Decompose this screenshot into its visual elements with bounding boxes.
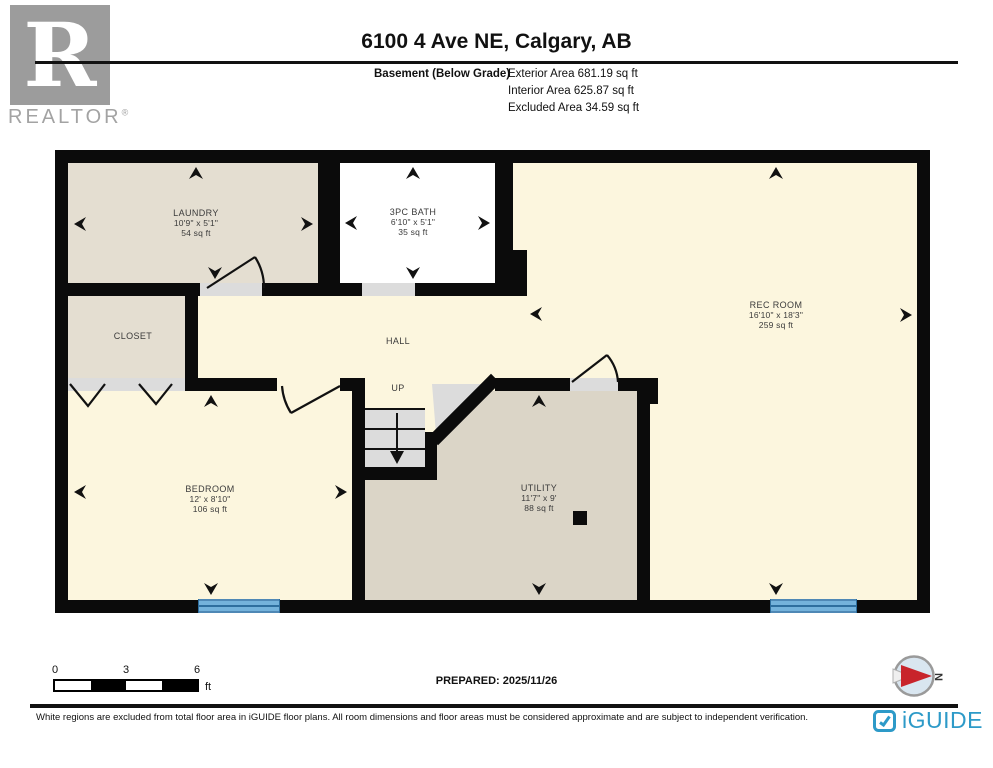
room-name: LAUNDRY [173, 208, 219, 218]
wall-segment [185, 378, 277, 391]
room-area: 106 sq ft [185, 504, 234, 514]
scale-bar: 0 3 6 ft [55, 664, 225, 696]
realtor-wordmark: REALTOR® [8, 106, 128, 129]
wall-segment [917, 163, 930, 613]
scale-cell [91, 681, 127, 690]
exterior-area-text: Exterior Area 681.19 sq ft [508, 68, 638, 80]
page-title: 6100 4 Ave NE, Calgary, AB [0, 30, 993, 54]
wall-segment [262, 283, 340, 296]
wall-segment [55, 283, 200, 296]
room-dims: 10'9" x 5'1" [173, 218, 219, 228]
header-divider [35, 61, 958, 64]
room-dims: 16'10" x 18'3" [749, 310, 803, 320]
room-dims: 11'7" x 9' [521, 493, 557, 503]
room-name: 3PC BATH [390, 207, 437, 217]
room-name: HALL [386, 336, 410, 346]
window-recroom [770, 599, 857, 613]
stair-treads [365, 408, 425, 467]
scale-bar-strip [53, 679, 199, 692]
room-name: REC ROOM [749, 300, 803, 310]
scale-cell [162, 681, 198, 690]
compass-north-label: N [932, 673, 944, 681]
wall-segment [340, 283, 362, 296]
wall-segment [637, 378, 650, 613]
floor-utility-understairs [365, 480, 437, 600]
iguide-icon [872, 708, 898, 734]
room-name: UTILITY [521, 483, 557, 493]
room-label-hall: HALL [386, 336, 410, 346]
scale-cell [55, 681, 91, 690]
realtor-brand-text: REALTOR [8, 106, 122, 128]
room-area: 88 sq ft [521, 503, 557, 513]
registered-mark: ® [122, 107, 129, 117]
scale-unit: ft [205, 681, 211, 693]
wall-segment [495, 378, 570, 391]
footer-divider [30, 704, 958, 708]
floor-label: Basement (Below Grade) [374, 68, 510, 80]
room-area: 259 sq ft [749, 320, 803, 330]
wall-segment [55, 163, 68, 613]
room-name: BEDROOM [185, 484, 234, 494]
closet-door-threshold [68, 378, 185, 391]
interior-area-text: Interior Area 625.87 sq ft [508, 85, 634, 97]
laundry-door-threshold [200, 283, 262, 296]
wall-segment [415, 283, 495, 296]
iguide-logo: iGUIDE [872, 707, 983, 734]
wall-segment [352, 378, 365, 613]
bath-door-threshold [362, 283, 415, 296]
scale-cell [126, 681, 162, 690]
scale-tick: 6 [194, 664, 200, 676]
scale-tick: 3 [123, 664, 129, 676]
wall-segment [318, 163, 340, 291]
room-label-utility: UTILITY 11'7" x 9' 88 sq ft [521, 483, 557, 513]
room-name: CLOSET [114, 331, 152, 341]
floorplan-page: R REALTOR® 6100 4 Ave NE, Calgary, AB Ba… [0, 0, 993, 768]
room-label-closet: CLOSET [114, 331, 152, 341]
realtor-r-glyph: R [10, 5, 110, 105]
disclaimer-text: White regions are excluded from total fl… [36, 712, 808, 723]
excluded-area-text: Excluded Area 34.59 sq ft [508, 102, 639, 114]
room-label-laundry: LAUNDRY 10'9" x 5'1" 54 sq ft [173, 208, 219, 238]
wall-segment [495, 250, 527, 296]
iguide-wordmark: iGUIDE [902, 707, 983, 734]
stairs-up-label: UP [391, 383, 404, 393]
utility-door-threshold [570, 378, 618, 391]
room-dims: 6'10" x 5'1" [390, 217, 437, 227]
room-dims: 12' x 8'10" [185, 494, 234, 504]
wall-segment [185, 296, 198, 391]
room-area: 54 sq ft [173, 228, 219, 238]
realtor-logo: R [10, 5, 110, 105]
room-label-bedroom: BEDROOM 12' x 8'10" 106 sq ft [185, 484, 234, 514]
scale-tick: 0 [52, 664, 58, 676]
compass-icon: N [885, 648, 960, 706]
wall-segment [55, 150, 930, 163]
room-label-bath: 3PC BATH 6'10" x 5'1" 35 sq ft [390, 207, 437, 237]
room-area: 35 sq ft [390, 227, 437, 237]
room-name: UP [391, 383, 404, 393]
window-bedroom [198, 599, 280, 613]
room-label-recroom: REC ROOM 16'10" x 18'3" 259 sq ft [749, 300, 803, 330]
wall-segment [425, 432, 437, 480]
